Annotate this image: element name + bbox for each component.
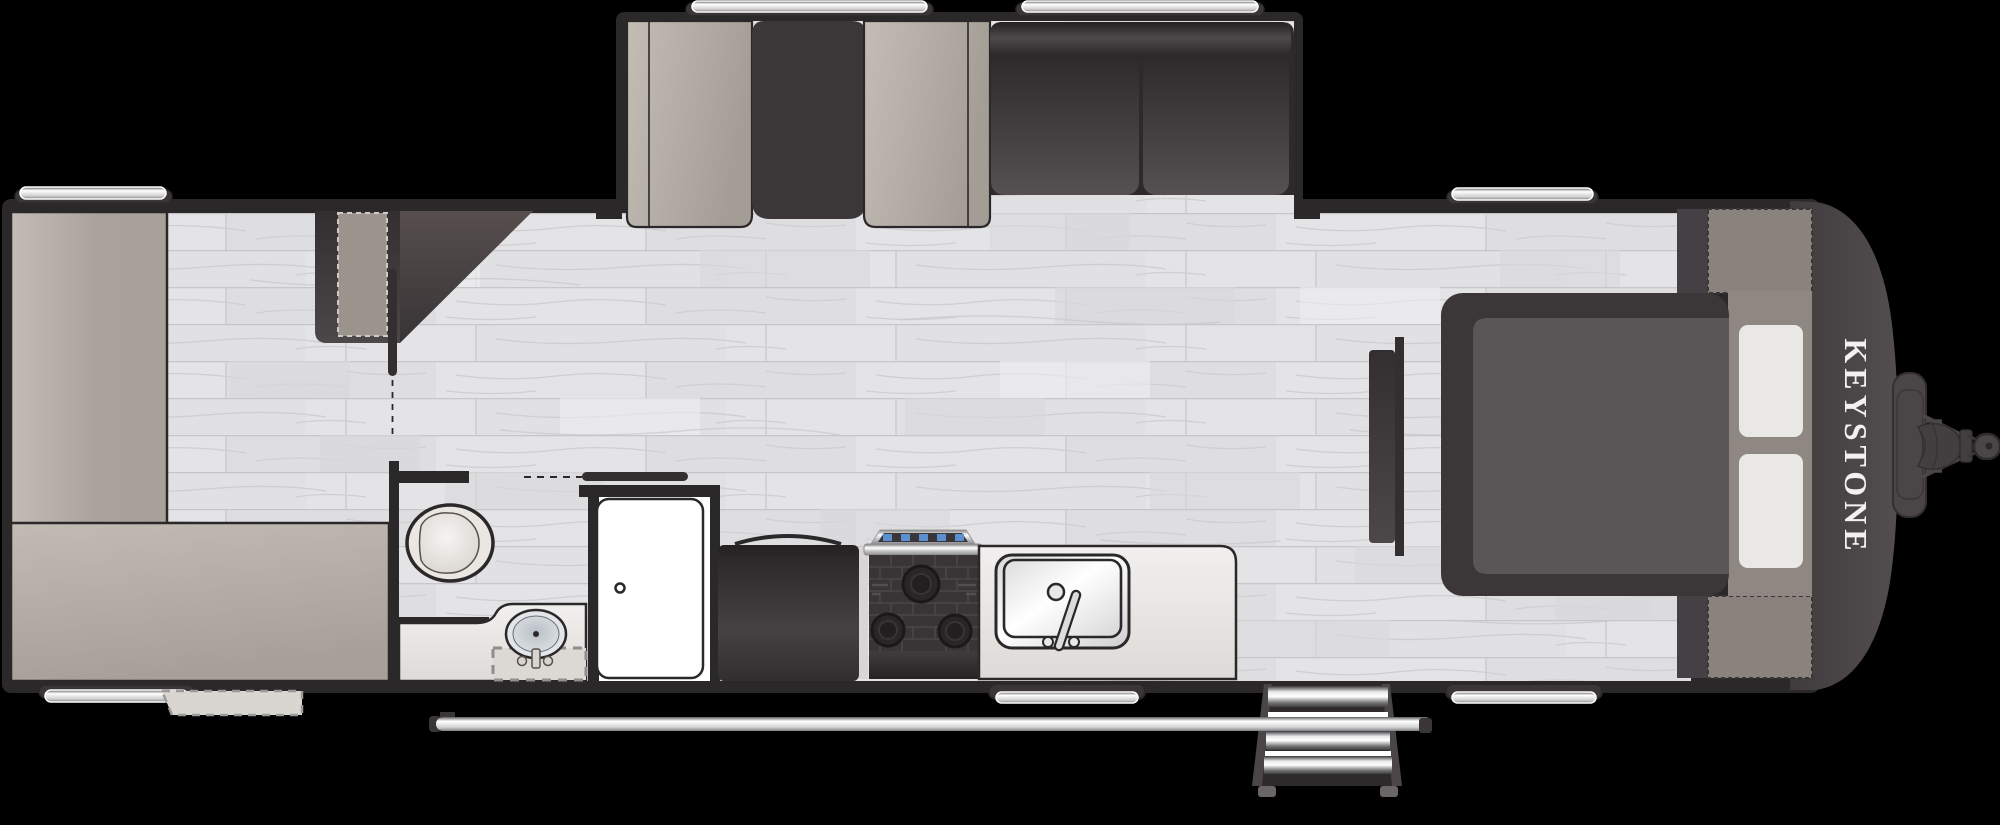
- svg-text:KEYSTONE: KEYSTONE: [1838, 338, 1874, 555]
